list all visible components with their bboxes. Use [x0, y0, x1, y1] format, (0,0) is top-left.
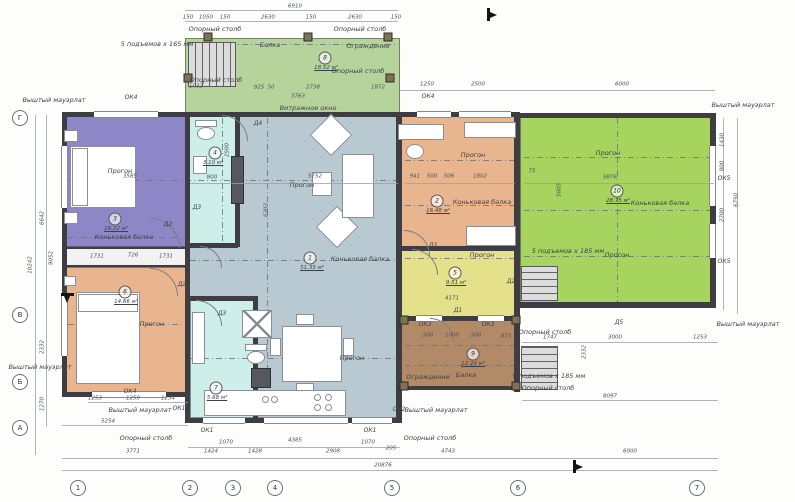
window-label: ОК5 — [718, 176, 731, 182]
annotation-label: Опорный столб — [334, 26, 387, 33]
dimension-text: 1070 — [219, 440, 233, 446]
dimension-text: 20876 — [374, 463, 392, 469]
wall-segment — [710, 113, 716, 308]
door-label: Д1 — [454, 308, 463, 314]
dimension-text: 1250 — [126, 396, 140, 402]
window-label: ОК2 — [393, 407, 406, 413]
annotation-label: Выштый мауэрлат — [8, 364, 71, 371]
grid-axis-marker: 7 — [689, 480, 705, 496]
annotation-label: 5 подъемов х 165 мм — [121, 41, 193, 48]
dimension-text: 506 — [444, 174, 455, 180]
dimension-text: 2500 — [471, 82, 485, 88]
furniture-rect — [204, 390, 346, 416]
dimension-text: 10242 — [28, 256, 34, 274]
room-number-marker: 6 — [119, 286, 132, 299]
dimension-text: 6303 — [264, 203, 270, 217]
dimension-text: 726 — [128, 253, 139, 259]
grid-axis-marker: В — [12, 307, 28, 323]
support-post — [304, 33, 313, 42]
dimension-text: 6000 — [623, 449, 637, 455]
annotation-label: Коньковая балка — [631, 200, 689, 207]
dimension-line — [88, 402, 188, 403]
dimension-text: 873 — [501, 334, 512, 340]
window-label: ОК4 — [422, 94, 435, 100]
annotation-label: Выштый мауэрлат — [404, 407, 467, 414]
dimension-text: 500 — [427, 174, 438, 180]
dimension-line — [46, 115, 47, 427]
room-area-label: 18.52 м² — [314, 65, 338, 71]
annotation-label: Опорный столб — [189, 26, 242, 33]
room-area-label: 28.75 м² — [606, 198, 630, 204]
dimension-text: 1032 — [189, 84, 203, 90]
dimension-text: 2738 — [306, 85, 320, 91]
door-label: Д5 — [615, 320, 624, 326]
furniture-x — [242, 310, 272, 338]
dimension-text: 500 — [471, 333, 482, 339]
annotation-label: Прогон — [605, 252, 630, 259]
dimension-text: 3585 — [123, 174, 137, 180]
room-number-marker: 10 — [611, 185, 624, 198]
support-post — [400, 382, 409, 391]
furniture-ellipse — [197, 127, 215, 140]
dimension-text: 1731 — [159, 254, 173, 260]
dimension-text: 500 — [423, 333, 434, 339]
furniture-ellipse — [325, 394, 332, 401]
dimension-text: 3771 — [126, 449, 140, 455]
room-number-marker: 3 — [109, 213, 122, 226]
furniture-ellipse — [314, 394, 321, 401]
door-label: Д4 — [254, 121, 263, 127]
dimension-text: 6642 — [40, 211, 46, 225]
door-label: Д2 — [507, 279, 516, 285]
window-opening — [459, 111, 511, 118]
furniture-rect — [195, 120, 217, 127]
room-number-marker: 9 — [467, 348, 480, 361]
annotation-label: Ограждение — [346, 43, 389, 50]
annotation-label: Опорный столб — [120, 435, 173, 442]
grid-axis-marker: 3 — [225, 480, 241, 496]
furniture-rect — [282, 326, 342, 382]
dimension-text: 4385 — [288, 438, 302, 444]
window-opening — [709, 146, 716, 206]
furniture-rect — [64, 212, 78, 224]
annotation-label: Ограждение — [406, 374, 449, 381]
door-label: Д2 — [178, 282, 187, 288]
door-label: Д3 — [193, 205, 202, 211]
support-post — [512, 316, 521, 325]
axis-dash-line — [405, 345, 517, 346]
dimension-text: 5605 — [557, 183, 563, 197]
annotation-label: Опорный столб — [404, 435, 457, 442]
furniture-rect — [270, 338, 281, 356]
dimension-text: 1253 — [88, 396, 102, 402]
dimension-text: 5876 — [603, 175, 617, 181]
dimension-text: 205 — [386, 446, 397, 452]
furniture-rect — [296, 314, 314, 325]
furniture-ellipse — [314, 404, 321, 411]
furniture-rect — [398, 124, 444, 140]
furniture-ellipse — [271, 396, 278, 403]
room-area-label: 12.24 м² — [461, 361, 485, 367]
dimension-text: 1731 — [90, 254, 104, 260]
window-label: ОК4 — [124, 389, 137, 395]
grid-axis-marker: 2 — [182, 480, 198, 496]
annotation-label: Опорный столб — [332, 68, 385, 75]
wall-segment — [396, 112, 402, 423]
furniture-ellipse — [247, 351, 265, 364]
room-number-marker: 1 — [304, 252, 317, 265]
dimension-text: 3763 — [291, 94, 305, 100]
wall-segment — [185, 112, 190, 423]
room-area-label: 51.35 м² — [300, 265, 324, 271]
annotation-label: 9 подъемов х 185 мм — [513, 373, 585, 380]
door-label: Д2 — [429, 243, 438, 249]
dimension-text: 150 — [220, 15, 231, 21]
annotation-label: Прогон — [290, 182, 315, 189]
furniture-dark — [231, 156, 244, 204]
annotation-label: Прогон — [140, 321, 165, 328]
annotation-label: Балка — [456, 372, 477, 379]
annotation-label: Выштый мауэрлат — [108, 407, 171, 414]
annotation-label: Выштый мауэрлат — [22, 97, 85, 104]
support-post — [400, 316, 409, 325]
room-number-marker: 5 — [449, 267, 462, 280]
window-opening — [203, 417, 245, 424]
furniture-rect — [342, 154, 374, 218]
dimension-text: 1802 — [473, 174, 487, 180]
window-label: ОК5 — [718, 259, 731, 265]
annotation-label: Прогон — [470, 252, 495, 259]
dimension-text: 1070 — [361, 440, 375, 446]
furniture-rect — [64, 276, 76, 286]
furniture-ellipse — [325, 404, 332, 411]
annotation-label: Коньковая балка — [453, 199, 511, 206]
room-area-label: 9.51 м² — [446, 280, 466, 286]
dimension-text: 9052 — [49, 251, 55, 265]
dimension-text: 6910 — [288, 4, 302, 10]
dimension-text: 1424 — [204, 449, 218, 455]
dimension-line — [400, 90, 715, 91]
grid-axis-marker: 1 — [70, 480, 86, 496]
room-area-label: 16.22 м² — [104, 226, 128, 232]
support-post — [512, 382, 521, 391]
furniture-ellipse — [406, 144, 424, 159]
dimension-text: 2332 — [40, 340, 46, 354]
annotation-label: Витражное окно — [280, 105, 337, 112]
dimension-text: 1428 — [248, 449, 262, 455]
grid-axis-marker: 5 — [384, 480, 400, 496]
dimension-line — [405, 183, 515, 184]
grid-axis-marker: 4 — [267, 480, 283, 496]
dimension-text: 1270 — [40, 397, 46, 411]
dimension-text: 8097 — [603, 394, 617, 400]
door-label: Д3 — [218, 311, 227, 317]
furniture-rect — [464, 122, 516, 138]
window-opening — [264, 417, 348, 424]
wall-segment — [402, 386, 516, 390]
dimension-line — [522, 400, 718, 401]
axis-dash-line — [405, 160, 515, 161]
dimension-text: 2908 — [326, 449, 340, 455]
dimension-text: 925 — [254, 85, 265, 91]
window-opening — [94, 111, 158, 118]
dimension-text: 2500 — [225, 143, 231, 157]
dimension-text: 150 — [183, 15, 194, 21]
dimension-line — [737, 118, 738, 314]
dimension-text: 50 — [268, 85, 275, 91]
support-post — [386, 74, 395, 83]
dimension-text: 800 — [207, 175, 218, 181]
annotation-label: Опорный столб — [522, 385, 575, 392]
grid-axis-marker: А — [12, 420, 28, 436]
annotation-label: Выштый мауэрлат — [716, 321, 779, 328]
window-label: ОК1 — [173, 406, 186, 412]
dimension-text: 1000 — [445, 333, 459, 339]
annotation-label: Прогон — [461, 152, 486, 159]
room-number-marker: 8 — [319, 52, 332, 65]
dimension-line — [185, 21, 398, 22]
annotation-label: Выштый мауэрлат — [711, 102, 774, 109]
section-cut-marker — [487, 8, 490, 21]
furniture-ellipse — [262, 396, 269, 403]
window-opening — [352, 417, 392, 424]
wall-segment — [65, 265, 185, 267]
dimension-text: 6000 — [615, 82, 629, 88]
dimension-line — [35, 115, 36, 455]
section-cut-marker — [61, 293, 74, 296]
annotation-label: 5 подъемов х 185 мм — [532, 248, 604, 255]
room-number-marker: 4 — [209, 147, 222, 160]
dimension-text: 5254 — [101, 419, 115, 425]
dimension-line — [185, 10, 398, 11]
furniture-rect — [245, 344, 267, 351]
dimension-line — [62, 458, 718, 459]
dimension-text: 1747 — [543, 335, 557, 341]
window-label: ОК3 — [482, 322, 495, 328]
stairs — [521, 266, 558, 301]
dimension-text: 4171 — [445, 296, 459, 302]
window-label: ОК1 — [364, 428, 377, 434]
dimension-text: 6750 — [734, 193, 740, 207]
door-label: Д2 — [164, 222, 173, 228]
section-cut-marker — [573, 460, 576, 473]
dimension-text: 1050 — [199, 15, 213, 21]
annotation-label: Балка — [260, 42, 281, 49]
dimension-line — [188, 447, 400, 448]
annotation-label: Коньковая балка — [331, 256, 389, 263]
support-post — [384, 33, 393, 42]
dimension-text: 941 — [410, 174, 421, 180]
furniture-rect — [466, 226, 516, 246]
dimension-text: 4743 — [441, 449, 455, 455]
dimension-text: 5752 — [308, 174, 322, 180]
annotation-label: Прогон — [596, 150, 621, 157]
room-area-label: 5.68 м² — [207, 395, 227, 401]
dimension-text: 1253 — [693, 335, 707, 341]
dimension-line — [62, 470, 718, 471]
furniture-rect — [64, 130, 78, 142]
wall-segment — [188, 243, 238, 248]
window-opening — [61, 146, 68, 208]
room-number-marker: 2 — [431, 195, 444, 208]
annotation-label: Коньковая балка — [95, 234, 153, 241]
dimension-text: 150 — [306, 15, 317, 21]
grid-axis-marker: Г — [12, 110, 28, 126]
annotation-label: Прогон — [340, 355, 365, 362]
wall-segment — [514, 112, 520, 392]
dimension-text: 2630 — [348, 15, 362, 21]
dimension-text: 75 — [529, 169, 536, 175]
dimension-text: 2332 — [582, 345, 588, 359]
dimension-text: 2700 — [720, 208, 726, 222]
wall-segment — [520, 113, 716, 118]
dimension-text: 150 — [391, 15, 402, 21]
grid-axis-marker: 6 — [510, 480, 526, 496]
furniture-dark — [251, 368, 271, 388]
window-label: ОК4 — [125, 95, 138, 101]
dimension-text: 1250 — [420, 82, 434, 88]
dimension-text: 3000 — [608, 335, 622, 341]
dimension-line — [62, 425, 188, 426]
dimension-text: 1872 — [371, 85, 385, 91]
dimension-text: 2630 — [261, 15, 275, 21]
dimension-text: 1430 — [720, 133, 726, 147]
support-post — [204, 33, 213, 42]
floor-plan-canvas: Выштый мауэрлатВыштый мауэрлатВыштый мау… — [0, 0, 795, 502]
room-area-label: 14.66 м² — [114, 299, 138, 305]
window-label: ОК1 — [201, 428, 214, 434]
dimension-text: 800 — [720, 161, 726, 172]
dimension-line — [522, 342, 718, 343]
grid-axis-marker: Б — [12, 374, 28, 390]
furniture-rect — [72, 148, 88, 206]
room-area-label: 16.48 м² — [426, 208, 450, 214]
window-label: ОК3 — [419, 322, 432, 328]
window-opening — [417, 111, 451, 118]
room-area-label: 3.10 м² — [203, 160, 223, 166]
dimension-text: 1254 — [161, 396, 175, 402]
room-number-marker: 7 — [210, 382, 223, 395]
window-opening — [709, 224, 716, 258]
axis-dash-line — [617, 118, 618, 302]
wall-segment — [520, 302, 716, 308]
